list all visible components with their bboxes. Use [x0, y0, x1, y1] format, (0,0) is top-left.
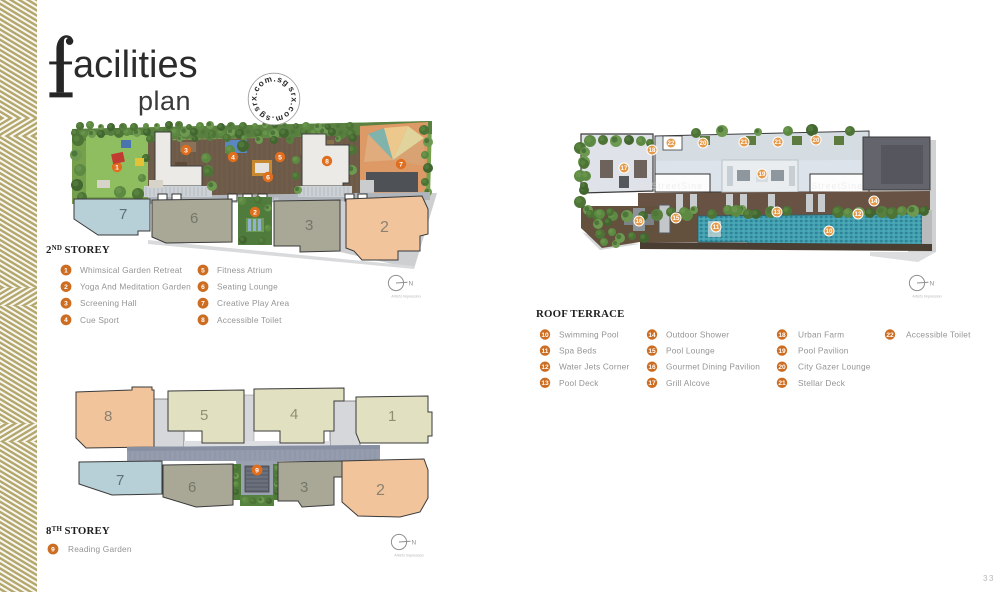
- svg-text:7: 7: [399, 161, 403, 168]
- svg-text:N: N: [412, 539, 417, 546]
- svg-text:3: 3: [184, 147, 188, 154]
- svg-text:21: 21: [741, 139, 748, 146]
- svg-text:11: 11: [713, 224, 720, 231]
- svg-text:1: 1: [64, 267, 68, 274]
- svg-text:Accessible Toilet: Accessible Toilet: [217, 315, 282, 325]
- svg-text:Accessible Toilet: Accessible Toilet: [906, 330, 971, 340]
- svg-text:7: 7: [116, 472, 124, 489]
- svg-text:Pool Lounge: Pool Lounge: [666, 346, 715, 356]
- svg-text:Outdoor Shower: Outdoor Shower: [666, 330, 729, 340]
- svg-text:N: N: [930, 280, 935, 287]
- svg-text:14: 14: [871, 198, 878, 205]
- svg-text:N: N: [409, 280, 414, 287]
- svg-text:Water Jets Corner: Water Jets Corner: [559, 362, 629, 372]
- svg-text:2: 2: [380, 219, 389, 236]
- svg-text:21: 21: [775, 139, 782, 146]
- svg-text:4: 4: [231, 154, 235, 161]
- svg-text:13: 13: [541, 380, 549, 387]
- svg-text:21: 21: [778, 380, 786, 387]
- svg-text:10: 10: [541, 332, 549, 339]
- svg-text:Grill Alcove: Grill Alcove: [666, 378, 710, 388]
- svg-text:3: 3: [64, 301, 68, 308]
- svg-text:18: 18: [778, 332, 786, 339]
- svg-text:19: 19: [759, 171, 766, 178]
- svg-text:Artist's Impression: Artist's Impression: [912, 295, 941, 299]
- svg-text:Urban Farm: Urban Farm: [798, 330, 844, 340]
- svg-text:Creative Play Area: Creative Play Area: [217, 298, 289, 308]
- svg-text:15: 15: [648, 348, 656, 355]
- svg-text:Yoga And Meditation Garden: Yoga And Meditation Garden: [80, 282, 191, 292]
- svg-text:19: 19: [778, 348, 786, 355]
- svg-text:15: 15: [673, 215, 680, 222]
- svg-text:Screening Hall: Screening Hall: [80, 298, 137, 308]
- svg-text:3: 3: [305, 217, 313, 234]
- svg-text:3: 3: [300, 479, 308, 496]
- svg-text:8: 8: [325, 158, 329, 165]
- svg-text:Spa Beds: Spa Beds: [559, 346, 597, 356]
- svg-text:12: 12: [541, 364, 549, 371]
- svg-text:6: 6: [190, 210, 198, 227]
- svg-text:Gourmet Dining Pavilion: Gourmet Dining Pavilion: [666, 362, 760, 372]
- svg-text:© StreetSine: © StreetSine: [800, 181, 863, 191]
- svg-text:10: 10: [826, 228, 833, 235]
- svg-text:© StreetSine: © StreetSine: [640, 181, 703, 191]
- svg-text:12: 12: [855, 211, 862, 218]
- svg-text:City Gazer Lounge: City Gazer Lounge: [798, 362, 871, 372]
- svg-text:22: 22: [886, 332, 894, 339]
- svg-text:Whimsical Garden Retreat: Whimsical Garden Retreat: [80, 265, 183, 275]
- svg-text:Artist's Impression: Artist's Impression: [391, 295, 420, 299]
- svg-text:17: 17: [648, 380, 656, 387]
- svg-text:2ND STOREY: 2ND STOREY: [46, 244, 110, 256]
- svg-text:18: 18: [649, 147, 656, 154]
- svg-text:Pool Deck: Pool Deck: [559, 378, 599, 388]
- svg-text:16: 16: [636, 218, 643, 225]
- svg-text:Swimming Pool: Swimming Pool: [559, 330, 619, 340]
- svg-text:6: 6: [266, 174, 270, 181]
- svg-text:8: 8: [201, 317, 205, 324]
- svg-text:4: 4: [290, 406, 298, 423]
- svg-text:Seating Lounge: Seating Lounge: [217, 282, 278, 292]
- svg-text:2: 2: [253, 209, 257, 216]
- svg-text:Cue Sport: Cue Sport: [80, 315, 120, 325]
- svg-text:1: 1: [388, 408, 396, 425]
- svg-text:4: 4: [64, 317, 68, 324]
- svg-text:5: 5: [200, 407, 208, 424]
- svg-text:1: 1: [115, 164, 119, 171]
- svg-text:Pool Pavilion: Pool Pavilion: [798, 346, 849, 356]
- svg-text:6: 6: [201, 284, 205, 291]
- svg-text:9: 9: [255, 467, 259, 474]
- svg-text:Stellar Deck: Stellar Deck: [798, 378, 846, 388]
- svg-text:8TH STOREY: 8TH STOREY: [46, 525, 110, 537]
- svg-text:17: 17: [621, 165, 628, 172]
- svg-text:Artist's Impression: Artist's Impression: [394, 554, 423, 558]
- svg-text:16: 16: [648, 364, 656, 371]
- svg-text:6: 6: [188, 479, 196, 496]
- svg-text:14: 14: [648, 332, 656, 339]
- svg-text:5: 5: [278, 154, 282, 161]
- svg-text:8: 8: [104, 408, 112, 425]
- svg-text:13: 13: [774, 209, 781, 216]
- svg-text:22: 22: [668, 140, 675, 147]
- svg-text:2: 2: [64, 284, 68, 291]
- svg-text:20: 20: [813, 137, 820, 144]
- svg-text:ROOF TERRACE: ROOF TERRACE: [536, 308, 625, 320]
- svg-text:20: 20: [700, 140, 707, 147]
- svg-text:2: 2: [376, 482, 385, 499]
- svg-text:7: 7: [119, 206, 127, 223]
- svg-text:20: 20: [778, 364, 786, 371]
- svg-text:5: 5: [201, 267, 205, 274]
- svg-text:11: 11: [542, 348, 549, 355]
- svg-text:Reading Garden: Reading Garden: [68, 544, 132, 554]
- svg-text:9: 9: [51, 546, 55, 553]
- svg-text:7: 7: [201, 301, 205, 308]
- svg-text:Fitness Atrium: Fitness Atrium: [217, 265, 272, 275]
